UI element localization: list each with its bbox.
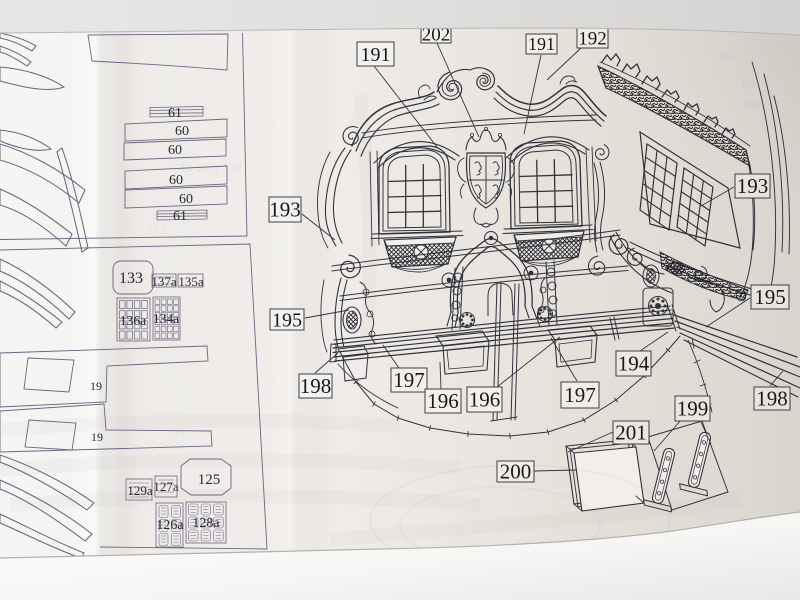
svg-text:61: 61 [168,106,182,121]
svg-text:136a: 136a [120,313,146,328]
svg-text:196: 196 [427,389,459,413]
svg-text:197: 197 [564,383,596,407]
svg-text:125: 125 [198,472,221,488]
svg-text:200: 200 [500,460,532,484]
svg-text:198: 198 [756,387,788,411]
svg-text:61: 61 [173,209,187,224]
svg-text:133: 133 [119,270,143,287]
svg-text:134a: 134a [153,311,179,326]
svg-text:193: 193 [737,174,769,198]
svg-text:197: 197 [393,368,425,392]
svg-text:128a: 128a [192,516,220,531]
svg-text:60: 60 [175,124,189,139]
svg-text:135a: 135a [178,274,204,289]
svg-text:60: 60 [169,173,183,188]
svg-text:21: 21 [174,425,186,439]
svg-text:212: 212 [146,222,166,237]
svg-text:19: 19 [90,379,102,393]
svg-text:(43 183) 139: (43 183) 139 [174,160,241,175]
svg-text:60: 60 [168,143,182,158]
svg-text:191: 191 [528,34,555,54]
svg-text:196: 196 [469,388,501,412]
svg-text:195: 195 [754,285,786,309]
svg-text:201: 201 [615,421,647,445]
svg-text:198: 198 [300,374,332,398]
svg-text:137a: 137a [151,274,177,289]
svg-text:192: 192 [578,29,607,50]
svg-text:126a: 126a [156,518,184,533]
svg-text:89: 89 [720,48,733,63]
svg-text:191: 191 [361,44,391,66]
svg-text:194: 194 [618,352,650,376]
svg-text:19: 19 [91,430,103,444]
svg-text:88: 88 [741,77,755,92]
svg-text:60: 60 [179,192,193,207]
svg-text:88: 88 [745,99,759,114]
svg-text:195: 195 [272,309,302,331]
svg-text:193: 193 [269,198,301,222]
svg-text:199: 199 [677,397,709,421]
